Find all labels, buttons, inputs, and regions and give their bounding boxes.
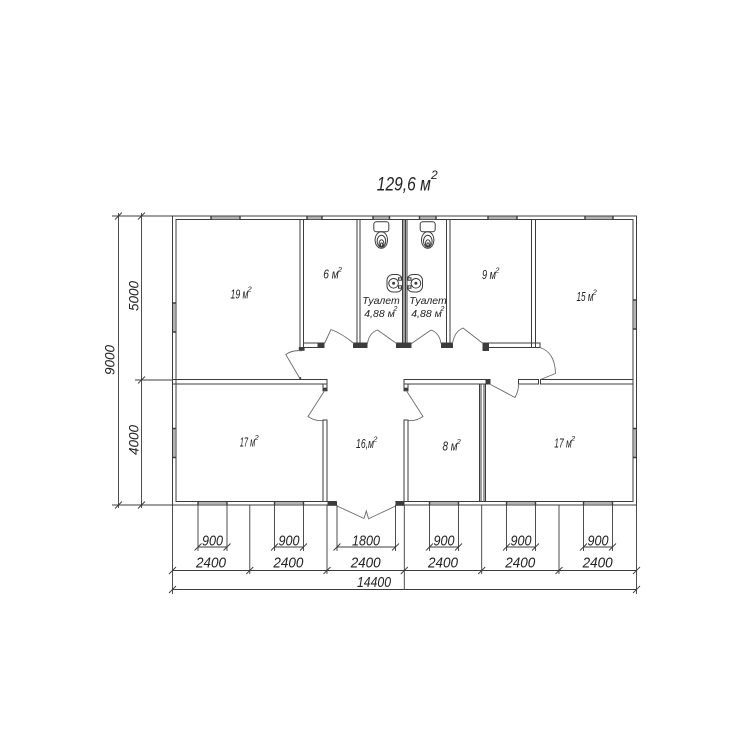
svg-text:2: 2 [430,168,438,182]
svg-text:17 м: 17 м [554,436,572,451]
svg-text:15 м: 15 м [577,289,594,304]
svg-text:900: 900 [202,533,224,550]
svg-text:900: 900 [511,533,533,550]
svg-text:900: 900 [588,533,610,550]
svg-text:8 м: 8 м [443,439,458,454]
svg-text:2400: 2400 [427,555,458,572]
svg-text:9000: 9000 [103,344,118,375]
svg-text:2400: 2400 [582,555,613,572]
svg-text:2: 2 [247,285,253,294]
svg-text:129,6 м: 129,6 м [377,175,431,196]
svg-text:2: 2 [372,435,378,444]
svg-text:2: 2 [337,265,343,274]
svg-text:1800: 1800 [352,533,381,550]
svg-text:2: 2 [393,306,398,313]
svg-text:4,88 м: 4,88 м [364,308,395,320]
svg-text:19 м: 19 м [231,287,249,302]
svg-text:2400: 2400 [350,555,381,572]
svg-text:2400: 2400 [273,555,304,572]
svg-text:2: 2 [440,306,445,313]
svg-text:4000: 4000 [127,424,142,455]
svg-text:2400: 2400 [504,555,535,572]
svg-text:2: 2 [494,266,500,275]
svg-text:16,м: 16,м [356,436,374,451]
svg-text:2: 2 [456,437,462,446]
svg-text:2: 2 [254,433,260,442]
svg-text:17 м: 17 м [240,435,256,450]
svg-text:6 м: 6 м [323,267,339,282]
svg-text:5000: 5000 [127,280,142,311]
svg-text:900: 900 [279,533,301,550]
svg-text:2400: 2400 [195,555,226,572]
svg-text:9 м: 9 м [482,267,496,282]
svg-text:2: 2 [592,288,598,297]
svg-text:14400: 14400 [357,574,392,591]
svg-text:4,88 м: 4,88 м [411,308,442,320]
svg-text:2: 2 [570,434,576,443]
svg-text:900: 900 [434,533,456,550]
